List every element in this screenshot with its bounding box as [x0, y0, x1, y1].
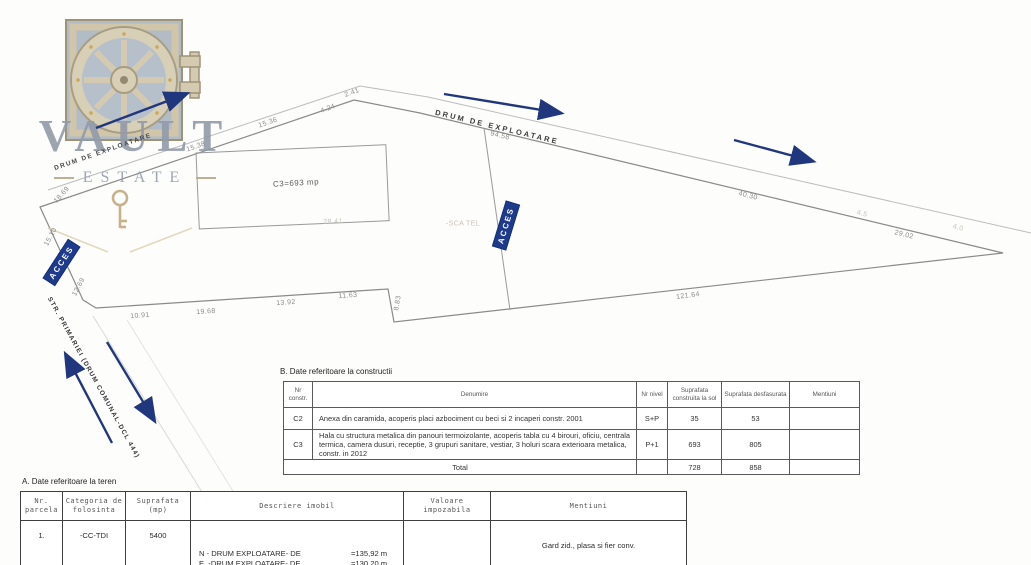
- parcel-suprafata: 5400: [126, 521, 191, 565]
- arrow-street-down: [107, 342, 154, 420]
- row-c3-nr: C3: [284, 430, 313, 460]
- col-header-valoare: Valoare impozabila: [404, 492, 491, 521]
- row-c2-denumire: Anexa din caramida, acoperis placi azboc…: [313, 408, 637, 430]
- row-c2-nivel: S+P: [637, 408, 668, 430]
- parcel-valoare: [404, 521, 491, 565]
- col-header-mentiuni-a: Mentiuni: [491, 492, 686, 521]
- col-header-categoria: Categoria de folosinta: [63, 492, 126, 521]
- constructions-table: Nr constr. Denumire Nr nivel Suprafata c…: [283, 381, 860, 475]
- total-row-label: Total: [284, 460, 637, 474]
- parcel-categoria: -CC-TDI: [63, 521, 126, 565]
- arrow-upper-left: [96, 94, 186, 128]
- row-c3-mentiuni: [790, 430, 859, 460]
- row-c3-sol: 693: [668, 430, 722, 460]
- parcel-nr: 1.: [21, 521, 63, 565]
- row-c3-denumire: Hala cu structura metalica din panouri t…: [313, 430, 637, 460]
- total-nivel: [637, 460, 668, 474]
- row-c2-sol: 35: [668, 408, 722, 430]
- traffic-direction-arrows: [0, 0, 1031, 565]
- col-header-nr-parcela: Nr. parcela: [21, 492, 63, 521]
- col-header-supr-sol: Suprafata construita la sol: [668, 382, 722, 408]
- row-c2-nr: C2: [284, 408, 313, 430]
- total-mentiuni: [790, 460, 859, 474]
- col-header-supr-desf: Suprafata desfasurata: [722, 382, 790, 408]
- descriere-line: E -DRUM EXPLOATARE- DE=130,20 m: [199, 559, 399, 565]
- arrow-street-up: [66, 355, 112, 443]
- col-header-nr-nivel: Nr nivel: [637, 382, 668, 408]
- arrow-right-road: [734, 140, 812, 161]
- land-table-title: A. Date referitoare la teren: [22, 477, 116, 486]
- row-c3-desf: 805: [722, 430, 790, 460]
- row-c3-nivel: P+1: [637, 430, 668, 460]
- col-header-nr-constr: Nr constr.: [284, 382, 313, 408]
- row-c2-mentiuni: [790, 408, 859, 430]
- constructions-table-title: B. Date referitoare la constructii: [280, 367, 392, 376]
- descriere-line: N - DRUM EXPLOATARE- DE=135,92 m: [199, 549, 399, 559]
- col-header-mentiuni: Mentiuni: [790, 382, 859, 408]
- col-header-suprafata: Suprafata (mp): [126, 492, 191, 521]
- descriere-lines: N - DRUM EXPLOATARE- DE=135,92 mE -DRUM …: [191, 521, 404, 565]
- cadastral-plan-document: VAULT ESTATE DRUM DE EXPLOATARE DRUM DE …: [0, 0, 1031, 565]
- col-header-denumire: Denumire: [313, 382, 637, 408]
- row-c2-desf: 53: [722, 408, 790, 430]
- parcel-mentiuni: Gard zid., plasa si fier conv.: [491, 521, 686, 565]
- land-table: Nr. parcela Categoria de folosinta Supra…: [20, 491, 687, 565]
- total-desf: 858: [722, 460, 790, 474]
- col-header-descriere: Descriere imobil: [191, 492, 404, 521]
- total-sol: 728: [668, 460, 722, 474]
- arrow-top-road: [444, 94, 560, 113]
